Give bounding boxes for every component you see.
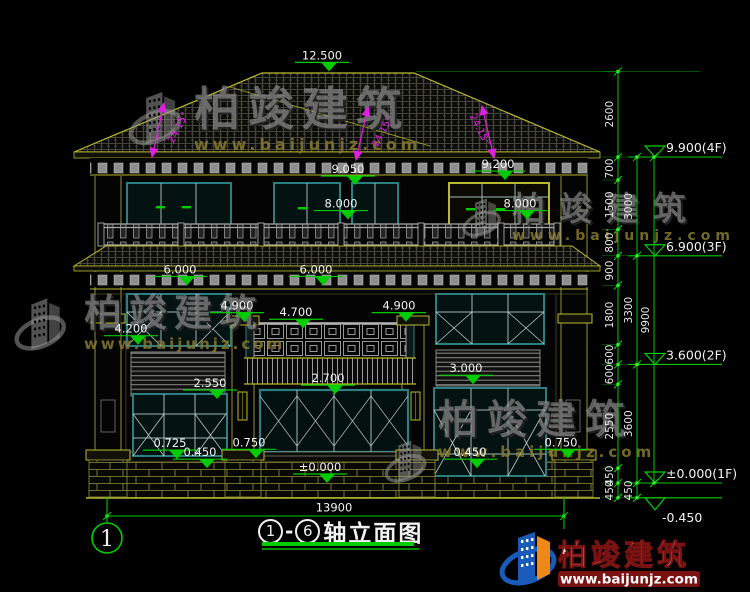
axis-circle-end: 6: [295, 519, 320, 544]
logo-building-orange: [537, 536, 550, 580]
axis-dash: -: [285, 519, 293, 543]
title-underline-thick: [262, 542, 414, 546]
main-roof: [74, 73, 600, 175]
logo-brand-text: 柏竣建筑: [558, 538, 690, 572]
building-elevation-drawing: [0, 0, 750, 592]
axis-circle-start: 1: [258, 519, 283, 544]
brand-logo: 柏竣建筑 www.baijunjz.com: [498, 526, 716, 590]
third-floor-windows: [127, 183, 549, 225]
second-floor-pent-roof: [74, 246, 600, 294]
balcony: [244, 318, 416, 384]
third-floor-railing: [98, 223, 560, 246]
cad-canvas: 柏竣建筑 www.baijunjz.com 柏竣建筑 www.baijunjz.…: [0, 0, 750, 592]
title-underline-thin: [262, 548, 419, 550]
entrance-door: [256, 390, 412, 456]
logo-site-text: www.baijunjz.com: [560, 572, 698, 588]
building-body: [74, 73, 600, 498]
